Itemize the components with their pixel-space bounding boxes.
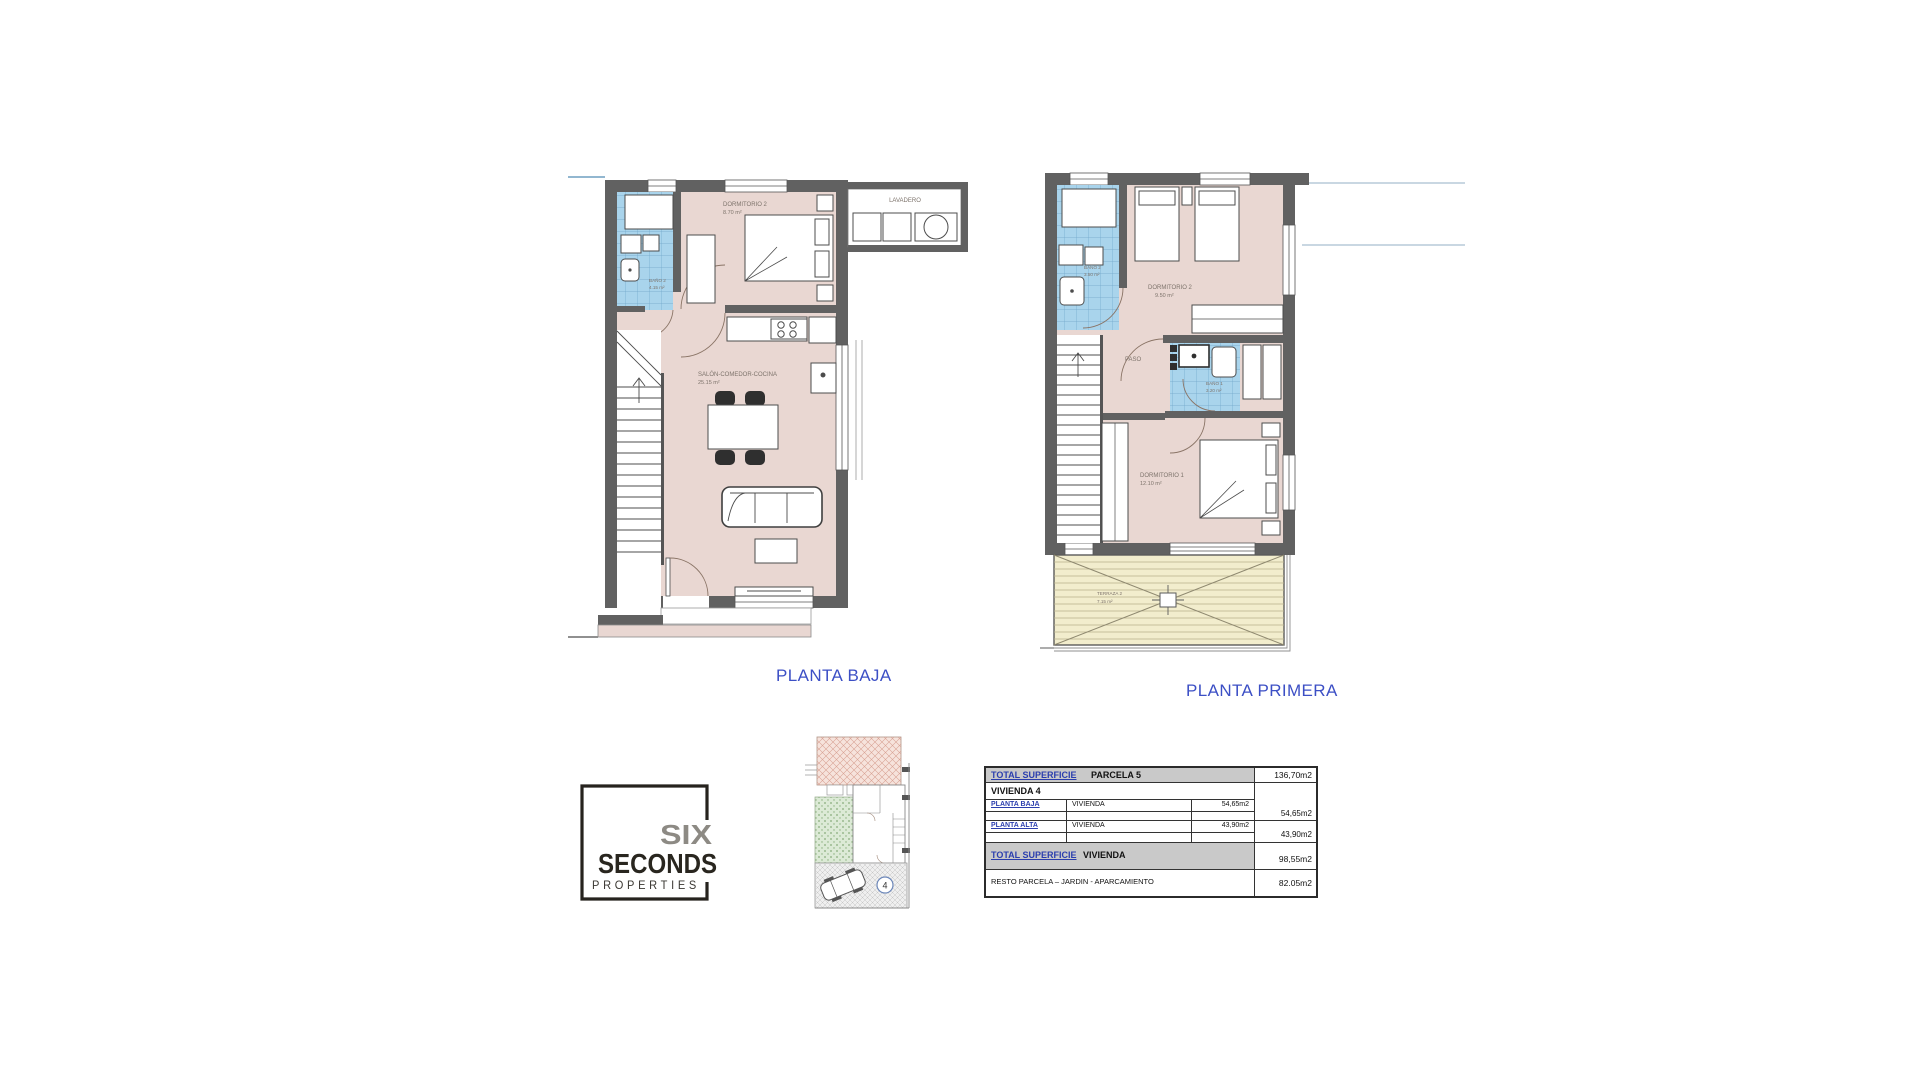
ground-floor-plan-svg: LAVADERO BAÑO 2 4.15 m²: [565, 135, 995, 647]
coffee-table: [755, 539, 797, 563]
shower: [625, 195, 673, 229]
table-row-use: VIVIENDA: [1072, 801, 1105, 808]
washbasin: [1059, 245, 1083, 265]
table-row-total: 54,65m2: [1256, 809, 1312, 818]
first-plan-title: PLANTA PRIMERA: [1186, 681, 1338, 701]
wardrobe: [687, 235, 715, 303]
table-total-value: 98,55m2: [1256, 854, 1312, 864]
terraza2-area: 7.15 m²: [1097, 599, 1113, 604]
dormitorio1-area: 12.10 m²: [1140, 481, 1162, 487]
table-row-value: 43,90m2: [1191, 822, 1249, 829]
pillow: [1266, 445, 1276, 475]
toilet: [1212, 347, 1236, 377]
bano2-label: BAÑO 2: [649, 277, 666, 283]
table-line: [986, 820, 1316, 821]
floorplan-sheet: LAVADERO BAÑO 2 4.15 m²: [0, 0, 1920, 1080]
table-line: [986, 782, 1316, 783]
pillow: [1199, 191, 1235, 205]
lavadero-room: LAVADERO: [848, 182, 968, 252]
surface-areas-table: TOTAL SUPERFICIE PARCELA 5 136,70m2 VIVI…: [984, 766, 1318, 898]
table-row-floor: PLANTA ALTA: [991, 822, 1038, 829]
logo-six: SIX: [660, 819, 712, 850]
table-resto-label: RESTO PARCELA – JARDIN - APARCAMIENTO: [991, 877, 1154, 886]
first-floor-plan-svg: BAÑO 2 3.50 m² DORMITORIO 2 9.50 m²: [1040, 165, 1470, 677]
pillow: [815, 251, 829, 277]
table-row-use: VIVIENDA: [1072, 822, 1105, 829]
nightstand: [1262, 521, 1280, 535]
table-line: [986, 842, 1316, 843]
bano2-area: 3.50 m²: [1084, 272, 1100, 277]
dining-table: [708, 405, 778, 449]
bathroom-2: BAÑO 2 3.50 m²: [1057, 185, 1127, 330]
table-line: [986, 832, 1254, 833]
dormitorio2-area: 9.50 m²: [1155, 293, 1174, 299]
table-line: [1066, 799, 1067, 842]
terrace: TERRAZA 2 7.15 m²: [1040, 555, 1290, 651]
table-line: [986, 799, 1254, 800]
pillow: [1139, 191, 1175, 205]
nightstand: [817, 195, 833, 211]
bano2-label: BAÑO 2: [1084, 264, 1101, 270]
nightstand: [1262, 423, 1280, 437]
bano1-area: 3.20 m²: [1206, 388, 1222, 393]
table-header-label: TOTAL SUPERFICIE: [991, 770, 1077, 780]
shower: [1062, 189, 1116, 227]
ground-plan-title: PLANTA BAJA: [776, 666, 892, 686]
porch: [568, 608, 811, 637]
sink-basin: [924, 215, 948, 239]
bano1-label: BAÑO 1: [1206, 380, 1223, 386]
terraza2-label: TERRAZA 2: [1097, 591, 1122, 596]
hob: [771, 319, 807, 339]
ground-floor-plan: LAVADERO BAÑO 2 4.15 m²: [568, 177, 968, 637]
table-row-total: 43,90m2: [1256, 830, 1312, 839]
six-seconds-logo: SIX SECONDS PROPERTIES: [576, 780, 726, 905]
washbasin: [621, 235, 641, 253]
table-row-value: 54,65m2: [1191, 801, 1249, 808]
dormitorio2-label: DORMITORIO 2: [723, 202, 768, 208]
table-header-value: 136,70m2: [1256, 770, 1312, 780]
pillow: [1266, 483, 1276, 513]
staircase: [1057, 335, 1103, 543]
table-total-name: VIVIENDA: [1083, 850, 1126, 860]
dormitorio1-label: DORMITORIO 1: [1140, 473, 1185, 479]
site-plan: 4: [805, 737, 910, 908]
bathroom-1: BAÑO 1 3.20 m²: [1170, 343, 1240, 411]
salon-area: 25.15 m²: [698, 380, 720, 386]
table-line: [986, 869, 1316, 870]
table-resto-value: 82.05m2: [1256, 878, 1312, 888]
house-outline: [853, 785, 905, 863]
logo-frame-svg: SIX SECONDS PROPERTIES: [576, 780, 726, 905]
table-vivienda-label: VIVIENDA 4: [991, 786, 1041, 796]
logo-properties: PROPERTIES: [592, 878, 700, 892]
salon-label: SALÓN-COMEDOR-COCINA: [698, 371, 777, 378]
kitchen-sink: [811, 363, 836, 393]
staircase: [617, 330, 664, 608]
fridge: [809, 317, 836, 343]
nightstand: [817, 285, 833, 301]
washbasin: [1085, 247, 1103, 265]
bano2-area: 4.15 m²: [649, 285, 665, 290]
dormitorio2-label: DORMITORIO 2: [1148, 285, 1193, 291]
drain-marker: [1160, 593, 1176, 607]
table-row-floor: PLANTA BAJA: [991, 801, 1040, 808]
sofa: [722, 487, 822, 527]
dormitorio2-area: 8.70 m²: [723, 210, 742, 216]
plot-number: 4: [882, 881, 887, 891]
table-total-label: TOTAL SUPERFICIE: [991, 850, 1077, 860]
table-line: [1254, 768, 1255, 896]
nightstand: [1182, 187, 1192, 205]
street-lines: [805, 765, 817, 775]
table-line: [986, 811, 1254, 812]
laundry-counter: [853, 213, 957, 241]
first-floor-plan: BAÑO 2 3.50 m² DORMITORIO 2 9.50 m²: [1040, 173, 1465, 651]
paso-label: PASO: [1125, 357, 1142, 363]
logo-seconds: SECONDS: [598, 848, 717, 879]
pillow: [815, 219, 829, 245]
table-header-name: PARCELA 5: [1091, 770, 1141, 780]
washbasin: [643, 235, 659, 251]
site-plan-svg: 4: [805, 735, 935, 910]
lavadero-label: LAVADERO: [889, 198, 921, 204]
